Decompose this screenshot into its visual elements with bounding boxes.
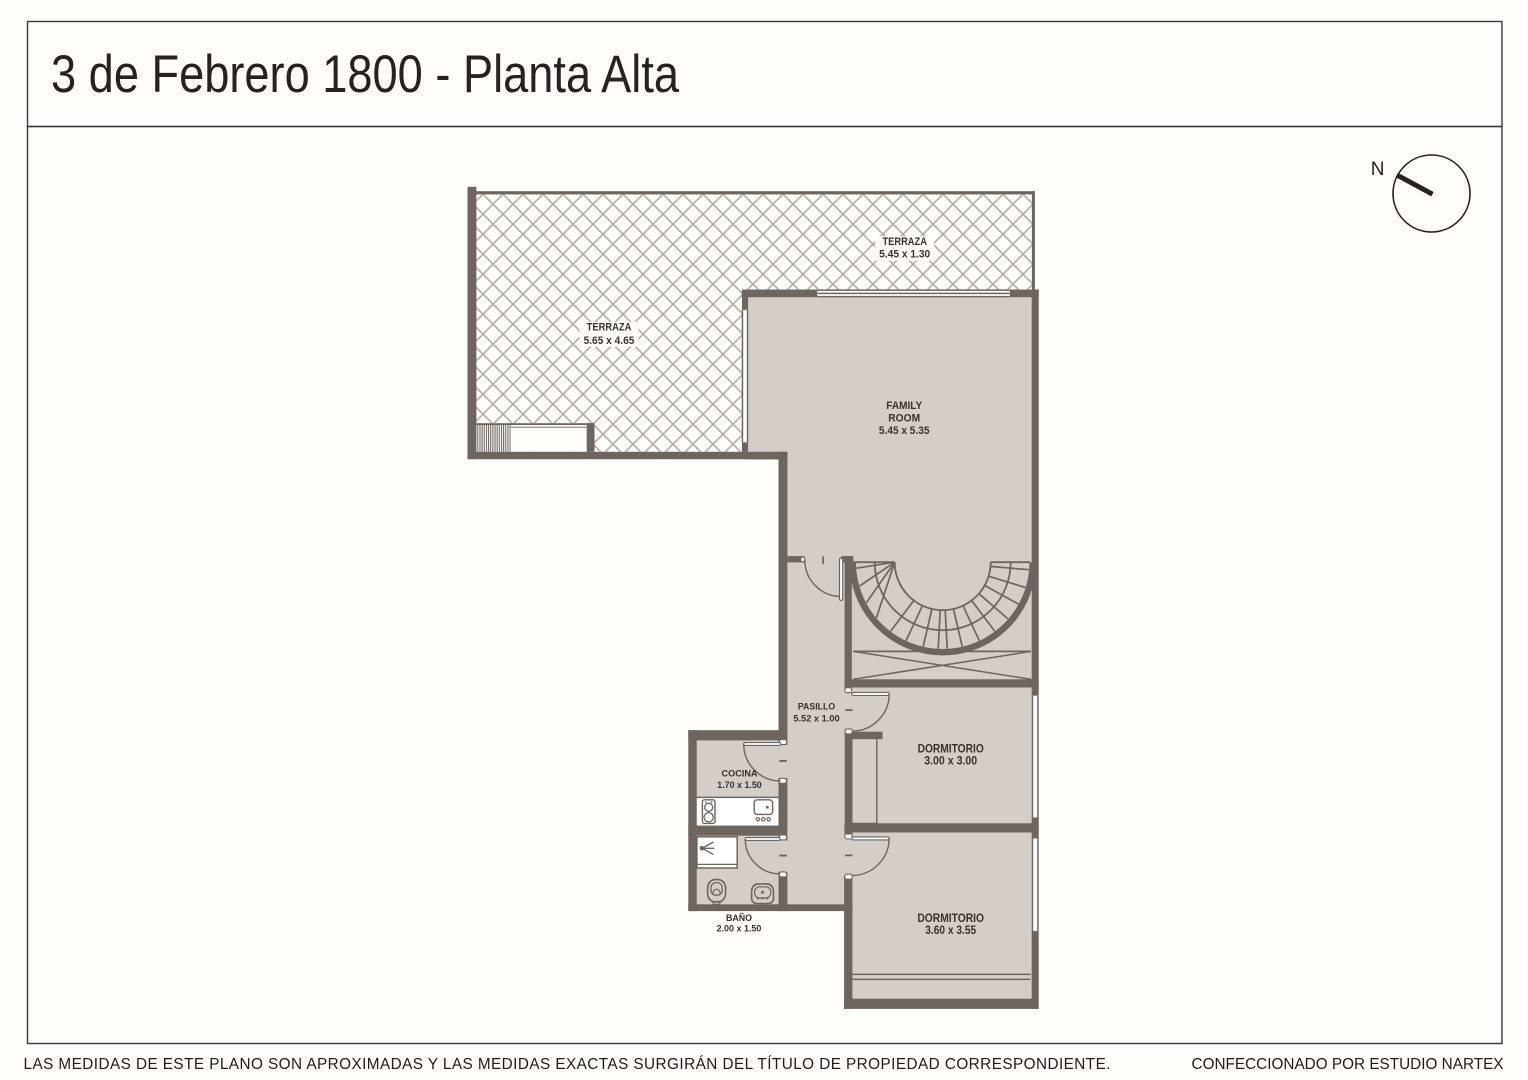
svg-text:TERRAZA: TERRAZA <box>587 322 632 334</box>
svg-text:5.45 x 5.35: 5.45 x 5.35 <box>879 425 930 437</box>
svg-text:3.00 x 3.00: 3.00 x 3.00 <box>924 754 977 767</box>
svg-text:LAS MEDIDAS DE ESTE PLANO SON: LAS MEDIDAS DE ESTE PLANO SON APROXIMADA… <box>24 1056 1111 1073</box>
svg-text:COCINA: COCINA <box>722 768 758 779</box>
svg-text:CONFECCIONADO POR ESTUDIO NART: CONFECCIONADO POR ESTUDIO NARTEX <box>1192 1056 1504 1073</box>
svg-text:2.00 x 1.50: 2.00 x 1.50 <box>717 923 762 934</box>
svg-text:ROOM: ROOM <box>888 413 920 425</box>
svg-text:N: N <box>1371 159 1385 180</box>
svg-text:5.65 x 4.65: 5.65 x 4.65 <box>584 335 635 347</box>
svg-text:FAMILY: FAMILY <box>886 400 922 412</box>
svg-text:TERRAZA: TERRAZA <box>882 236 927 248</box>
svg-text:1.70 x 1.50: 1.70 x 1.50 <box>717 779 762 790</box>
svg-text:5.45 x 1.30: 5.45 x 1.30 <box>879 249 930 261</box>
svg-text:3 de Febrero 1800 - Planta Alt: 3 de Febrero 1800 - Planta Alta <box>51 45 679 104</box>
svg-text:BAÑO: BAÑO <box>726 912 752 923</box>
svg-text:5.52 x 1.00: 5.52 x 1.00 <box>793 713 839 724</box>
svg-text:PASILLO: PASILLO <box>798 701 835 712</box>
svg-text:3.60 x 3.55: 3.60 x 3.55 <box>925 924 976 937</box>
